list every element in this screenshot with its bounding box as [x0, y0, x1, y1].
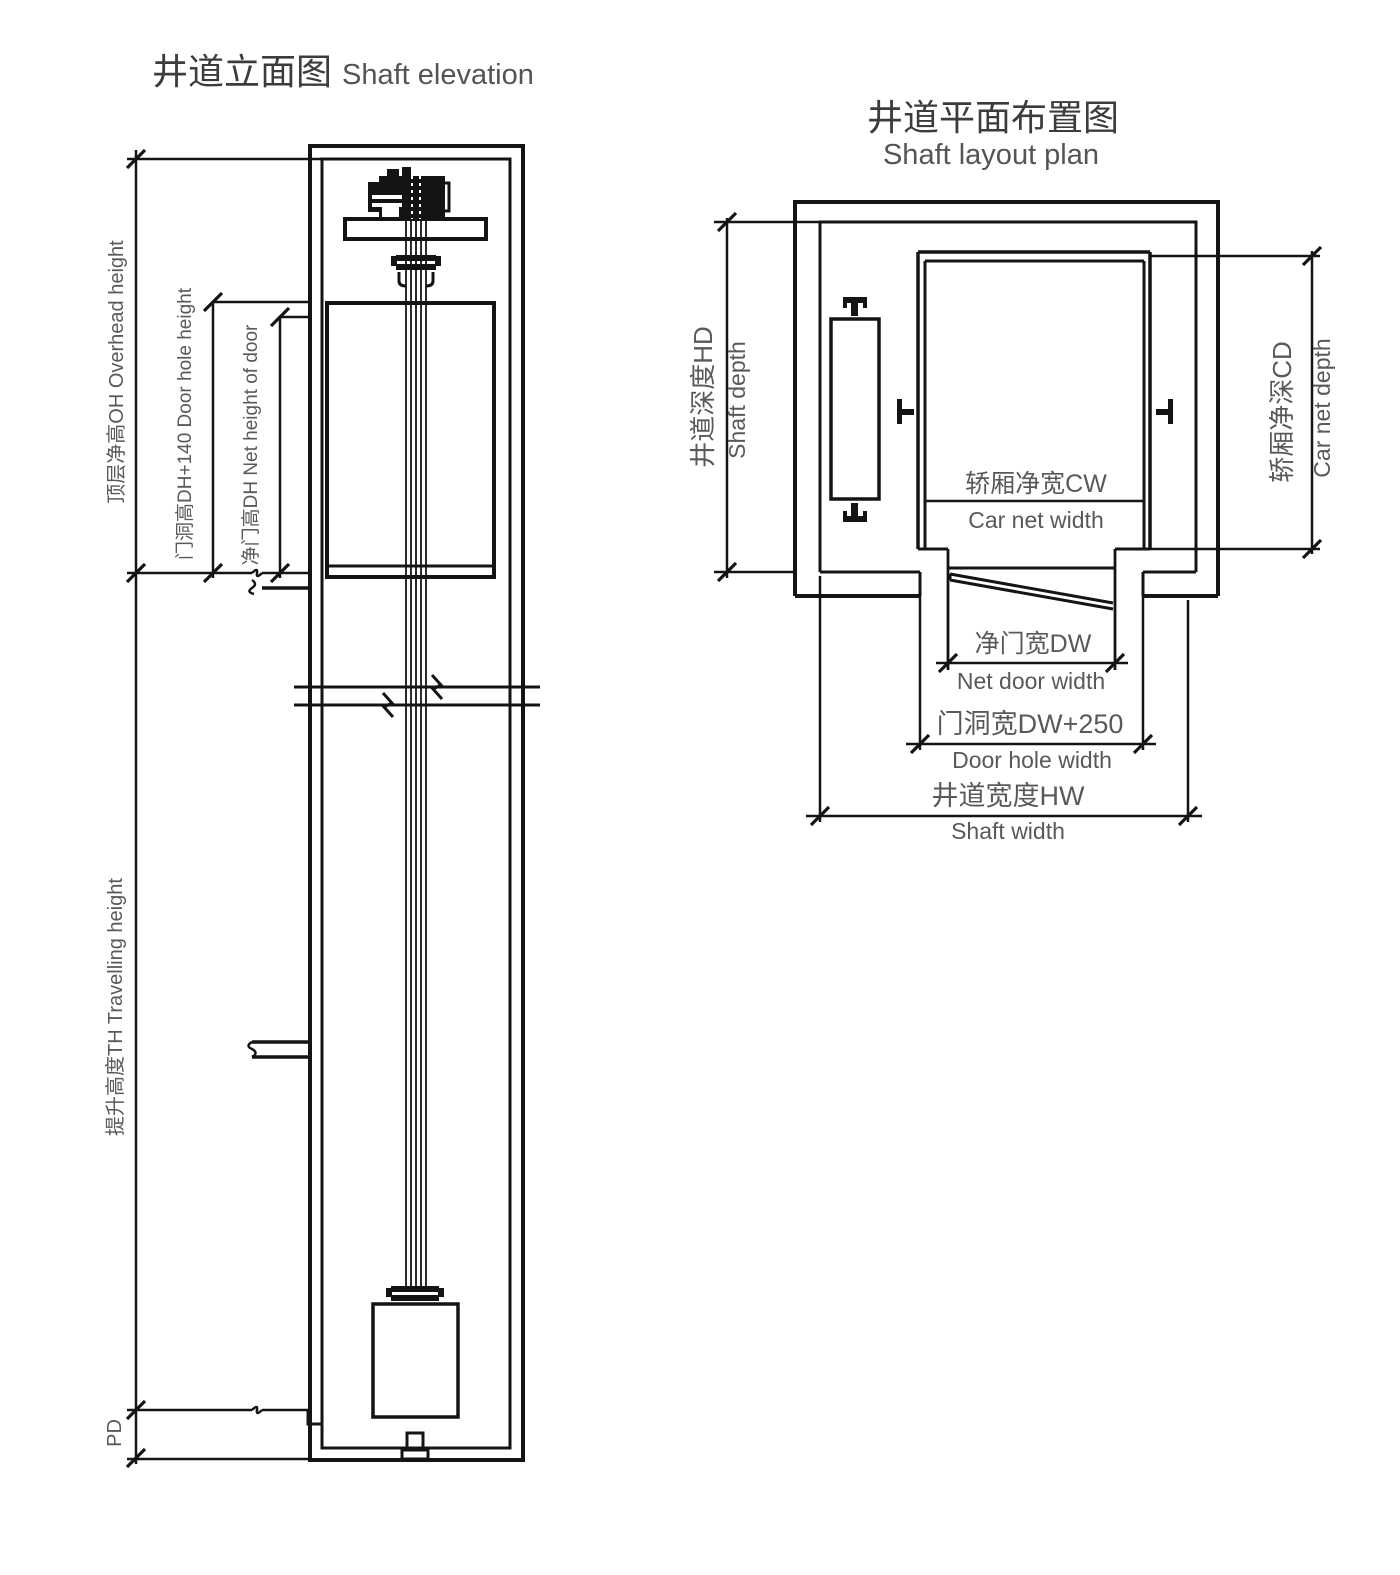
plan-title-en: Shaft layout plan — [883, 139, 1099, 171]
net-door-height-label: 净门高DH Net height of door — [240, 324, 262, 565]
plan-counterweight — [831, 297, 879, 522]
car-guide-rail-left — [897, 399, 914, 424]
counterweight — [373, 1286, 458, 1417]
shaft-depth-label-cn: 井道深度HD — [688, 326, 718, 468]
door-hole-height-label: 门洞高DH+140 Door hole height — [174, 287, 196, 560]
buffer — [402, 1433, 428, 1459]
elevation-title-en: Shaft elevation — [342, 59, 534, 91]
suspension-ropes — [406, 219, 426, 1292]
drawing-sheet: 井道立面图 Shaft elevation — [0, 0, 1400, 1575]
shaft-width-label-cn: 井道宽度HW — [932, 781, 1085, 811]
plan-title-cn: 井道平面布置图 — [867, 97, 1119, 138]
shaft-depth-dimension: 井道深度HD Shaft depth — [688, 213, 820, 581]
car-net-depth-dimension: 轿厢净深CD Car net depth — [1120, 247, 1335, 558]
elevation-title-cn: 井道立面图 — [152, 51, 332, 92]
door-hole-width-label-cn: 门洞宽DW+250 — [937, 709, 1124, 739]
net-door-width-dimension: 净门宽DW Net door width — [936, 549, 1128, 694]
counterweight-rail-top — [843, 297, 867, 316]
door-leaf — [950, 574, 1113, 609]
car-net-depth-label-cn: 轿厢净深CD — [1267, 341, 1297, 483]
door-height-dimensions: 门洞高DH+140 Door hole height 净门高DH Net hei… — [174, 287, 310, 582]
plan-car: 轿厢净宽CW Car net width — [918, 252, 1150, 568]
door-hole-width-label-en: Door hole width — [952, 747, 1112, 773]
shaft-plan-view: 井道平面布置图 Shaft layout plan — [688, 97, 1335, 844]
pit-depth-label: PD — [104, 1419, 126, 1447]
technical-drawing: 井道立面图 Shaft elevation — [0, 0, 1400, 1575]
travelling-height-label: 提升高度TH Travelling height — [104, 878, 127, 1136]
landing-slabs — [249, 580, 311, 1057]
elevation-main-dimension: 顶层净高OH Overhead height 提升高度TH Travelling… — [104, 150, 145, 1467]
hoist-machine — [368, 167, 449, 219]
car-net-width-label-cn: 轿厢净宽CW — [965, 470, 1107, 498]
shaft-depth-label-en: Shaft depth — [724, 341, 750, 459]
car-net-depth-label-en: Car net depth — [1309, 338, 1335, 477]
net-door-width-label-en: Net door width — [957, 668, 1105, 694]
shaft-break-lines — [294, 675, 540, 717]
shaft-elevation-view: 井道立面图 Shaft elevation — [104, 51, 540, 1467]
net-door-width-label-cn: 净门宽DW — [975, 630, 1092, 658]
car-guide-rail-right — [1156, 399, 1173, 424]
overhead-height-label: 顶层净高OH Overhead height — [105, 240, 128, 504]
car-net-width-label-en: Car net width — [968, 507, 1104, 533]
counterweight-rail-bottom — [843, 503, 867, 522]
shaft-width-label-en: Shaft width — [951, 818, 1065, 844]
